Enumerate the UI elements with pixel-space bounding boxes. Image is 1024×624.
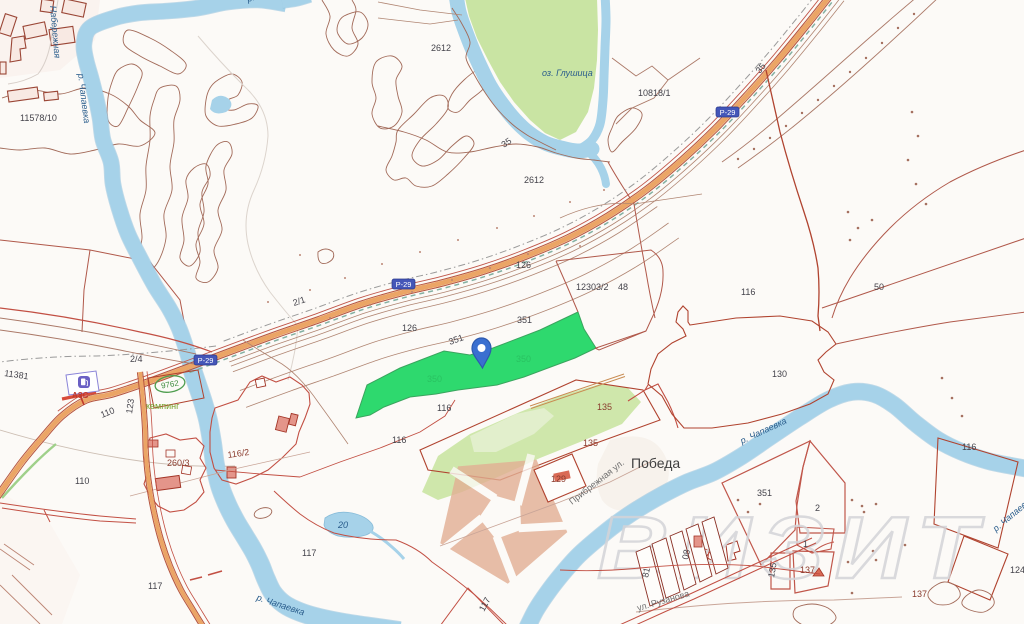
svg-text:135: 135 [597,402,612,412]
svg-text:12303/2: 12303/2 [576,282,609,292]
svg-text:350: 350 [516,354,531,364]
svg-text:48: 48 [618,282,628,292]
svg-text:351: 351 [517,315,532,325]
svg-text:50: 50 [874,282,884,292]
svg-text:110: 110 [75,476,89,486]
svg-text:кемпинг: кемпинг [146,401,180,411]
svg-text:116: 116 [437,403,451,413]
svg-text:116: 116 [392,435,406,445]
svg-text:117: 117 [302,548,316,558]
svg-text:1: 1 [803,539,808,549]
svg-text:20: 20 [337,520,348,530]
svg-text:08: 08 [680,549,692,561]
svg-text:оз. Глушица: оз. Глушица [542,68,593,78]
svg-text:11578/10: 11578/10 [20,113,57,123]
svg-text:81: 81 [640,567,652,579]
svg-text:129: 129 [551,474,566,484]
svg-text:2612: 2612 [524,175,544,185]
svg-text:350: 350 [427,374,442,384]
svg-text:116: 116 [962,442,976,452]
svg-text:Р-29: Р-29 [396,280,412,289]
svg-text:135: 135 [583,438,598,448]
svg-text:2612: 2612 [431,43,451,53]
svg-text:137: 137 [800,565,815,575]
svg-text:137: 137 [912,589,927,599]
svg-text:260/3: 260/3 [167,458,190,468]
svg-text:130: 130 [772,369,787,379]
svg-text:Победа: Победа [631,455,680,471]
svg-text:126: 126 [516,260,531,270]
svg-text:126: 126 [402,323,417,333]
svg-text:2/4: 2/4 [130,354,143,364]
svg-text:117: 117 [148,581,162,591]
svg-text:123: 123 [124,398,136,414]
svg-text:2: 2 [815,503,820,513]
svg-text:АЗС: АЗС [72,391,89,400]
svg-text:351: 351 [757,488,772,498]
svg-text:10818/1: 10818/1 [638,88,671,98]
svg-text:Р-29: Р-29 [198,356,214,365]
svg-text:116: 116 [741,287,755,297]
svg-text:Р-29: Р-29 [720,108,736,117]
svg-text:124: 124 [1010,565,1024,575]
